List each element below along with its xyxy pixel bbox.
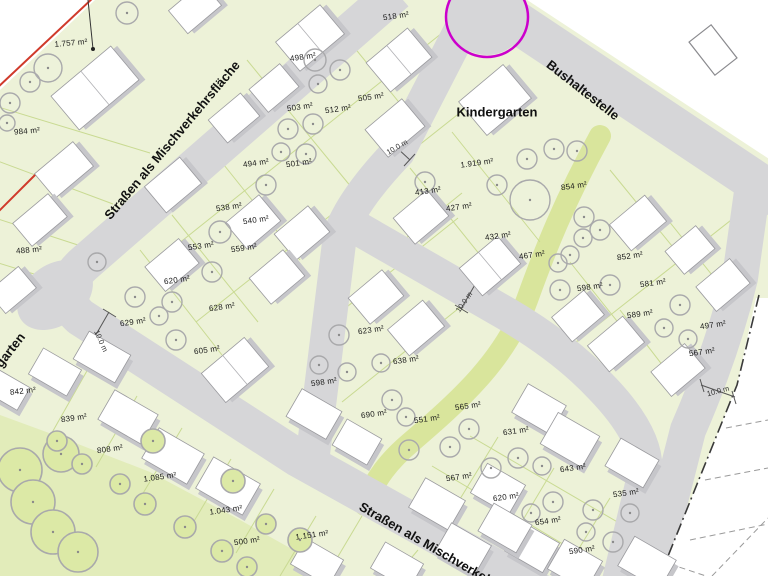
- tree-symbol: [679, 330, 697, 348]
- tree-symbol: [20, 72, 40, 92]
- tree-symbol: [329, 325, 349, 345]
- tree-symbol: [272, 143, 290, 161]
- tree-symbol: [88, 253, 106, 271]
- tree-symbol: [174, 516, 196, 538]
- tree-symbol: [303, 114, 323, 134]
- tree-symbol: [110, 474, 130, 494]
- tree-symbol: [309, 75, 327, 93]
- tree-symbol: [655, 319, 673, 337]
- tree-symbol: [202, 262, 222, 282]
- tree-symbol: [550, 280, 570, 300]
- tree-symbol: [338, 363, 356, 381]
- tree-symbol: [125, 287, 145, 307]
- tree-symbol: [510, 180, 550, 220]
- tree-symbol: [533, 457, 551, 475]
- tree-symbol: [237, 557, 257, 576]
- tree-symbol: [278, 119, 298, 139]
- site-plan: Straßen als Mischverkehrsfläche Straßen …: [0, 0, 768, 576]
- tree-symbol: [211, 540, 233, 562]
- tree-symbol: [508, 448, 528, 468]
- tree-symbol: [590, 220, 610, 240]
- tree-symbol: [256, 514, 276, 534]
- tree-symbol: [330, 60, 350, 80]
- tree-symbol: [72, 454, 92, 474]
- tree-symbol: [397, 408, 415, 426]
- tree-symbol: [487, 175, 507, 195]
- tree-symbol: [459, 419, 479, 439]
- tree-symbol: [47, 431, 67, 451]
- tree-symbol: [141, 429, 165, 453]
- site-plan-svg: [0, 0, 768, 576]
- tree-symbol: [577, 523, 595, 541]
- kindergarten-label: Kindergarten: [457, 105, 538, 120]
- tree-symbol: [544, 139, 564, 159]
- tree-symbol: [603, 532, 623, 552]
- tree-symbol: [372, 354, 390, 372]
- tree-symbol: [134, 493, 156, 515]
- tree-symbol: [670, 295, 690, 315]
- tree-symbol: [116, 2, 138, 24]
- tree-symbol: [150, 307, 168, 325]
- tree-symbol: [574, 229, 592, 247]
- tree-symbol: [574, 207, 594, 227]
- tree-symbol: [310, 356, 328, 374]
- tree-symbol: [221, 469, 245, 493]
- tree-symbol: [549, 254, 567, 272]
- tree-symbol: [58, 532, 98, 572]
- tree-symbol: [0, 93, 20, 113]
- tree-symbol: [481, 458, 501, 478]
- tree-symbol: [166, 330, 186, 350]
- tree-symbol: [621, 504, 639, 522]
- tree-symbol: [583, 500, 603, 520]
- tree-symbol: [256, 175, 276, 195]
- tree-symbol: [399, 440, 419, 460]
- tree-symbol: [567, 141, 587, 161]
- tree-symbol: [517, 149, 537, 169]
- tree-symbol: [543, 492, 563, 512]
- tree-symbol: [440, 437, 460, 457]
